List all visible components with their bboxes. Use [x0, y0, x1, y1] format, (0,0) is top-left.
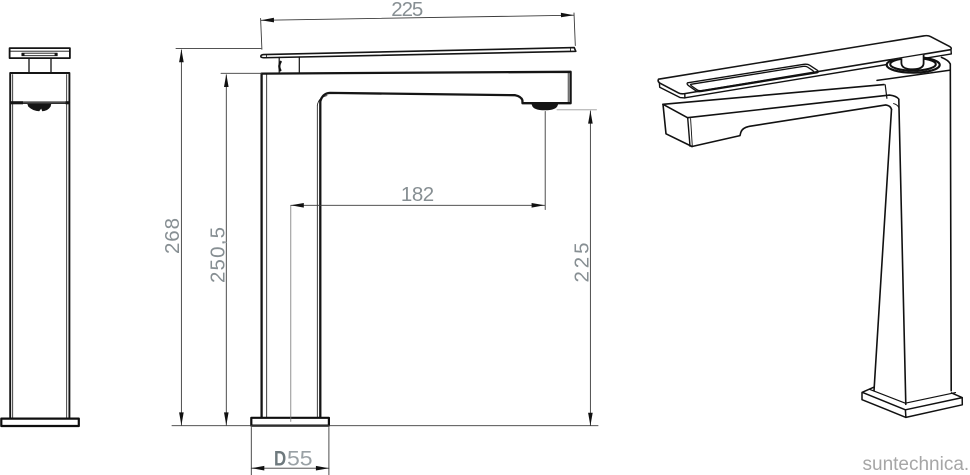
svg-text:suntechnica.ru: suntechnica.ru [863, 454, 970, 475]
svg-text:268: 268 [161, 218, 184, 254]
svg-text:225: 225 [571, 243, 594, 283]
svg-text:D: D [274, 447, 286, 470]
svg-text:182: 182 [401, 183, 434, 206]
svg-text:225: 225 [391, 0, 423, 21]
svg-text:55: 55 [287, 447, 313, 470]
svg-text:250,5: 250,5 [207, 227, 230, 283]
